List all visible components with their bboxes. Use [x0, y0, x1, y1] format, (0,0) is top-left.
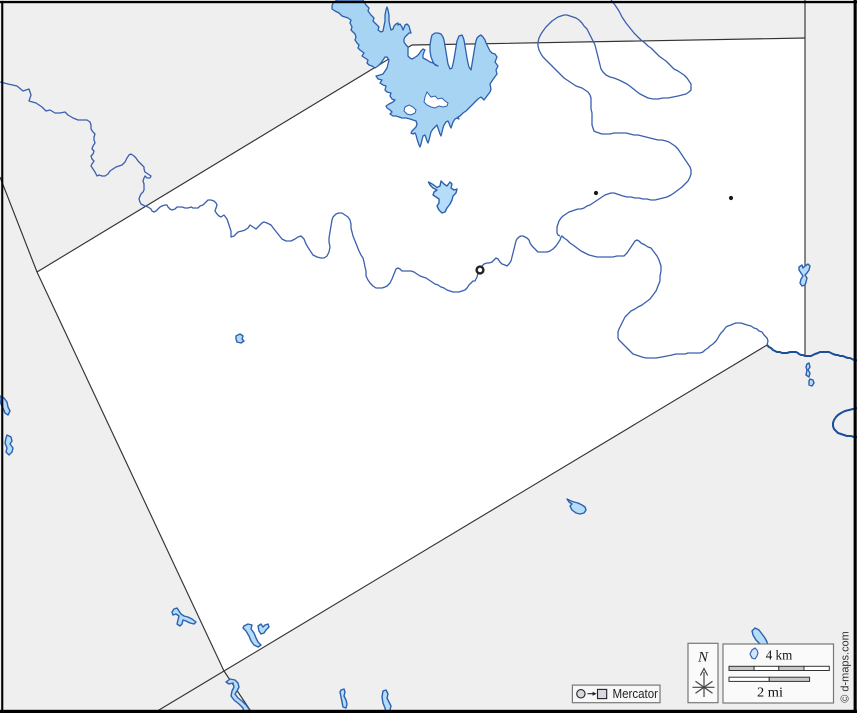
- svg-text:N: N: [697, 650, 709, 666]
- svg-text:4 km: 4 km: [766, 649, 793, 664]
- svg-text:© d-maps.com: © d-maps.com: [840, 631, 852, 703]
- svg-text:2 mi: 2 mi: [757, 686, 783, 701]
- svg-text:Mercator: Mercator: [613, 686, 659, 701]
